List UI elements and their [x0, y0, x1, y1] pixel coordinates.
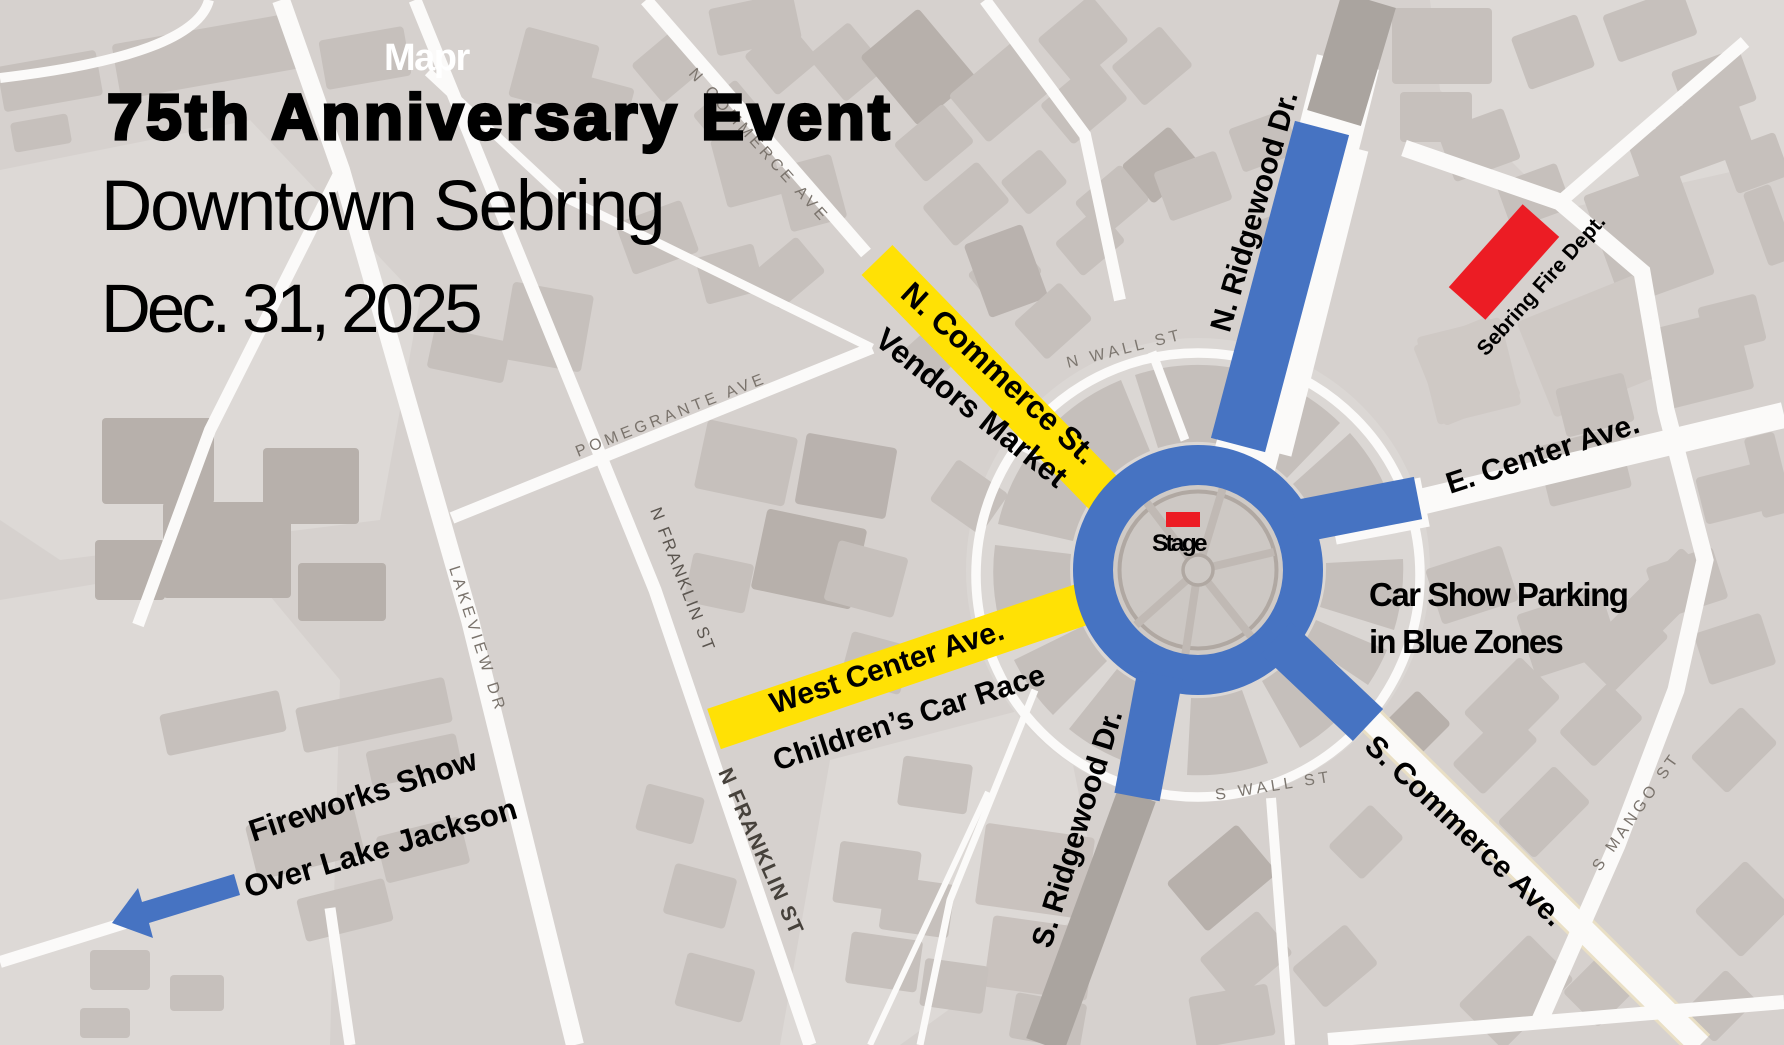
svg-text:Downtown Sebring: Downtown Sebring — [101, 167, 663, 246]
svg-text:Mapr: Mapr — [384, 37, 471, 79]
svg-text:75th Anniversary Event: 75th Anniversary Event — [107, 81, 893, 153]
svg-text:Stage: Stage — [1152, 530, 1207, 557]
svg-text:in Blue Zones: in Blue Zones — [1369, 623, 1562, 660]
svg-text:Dec. 31, 2025: Dec. 31, 2025 — [101, 270, 480, 347]
svg-text:Car Show Parking: Car Show Parking — [1369, 576, 1627, 613]
